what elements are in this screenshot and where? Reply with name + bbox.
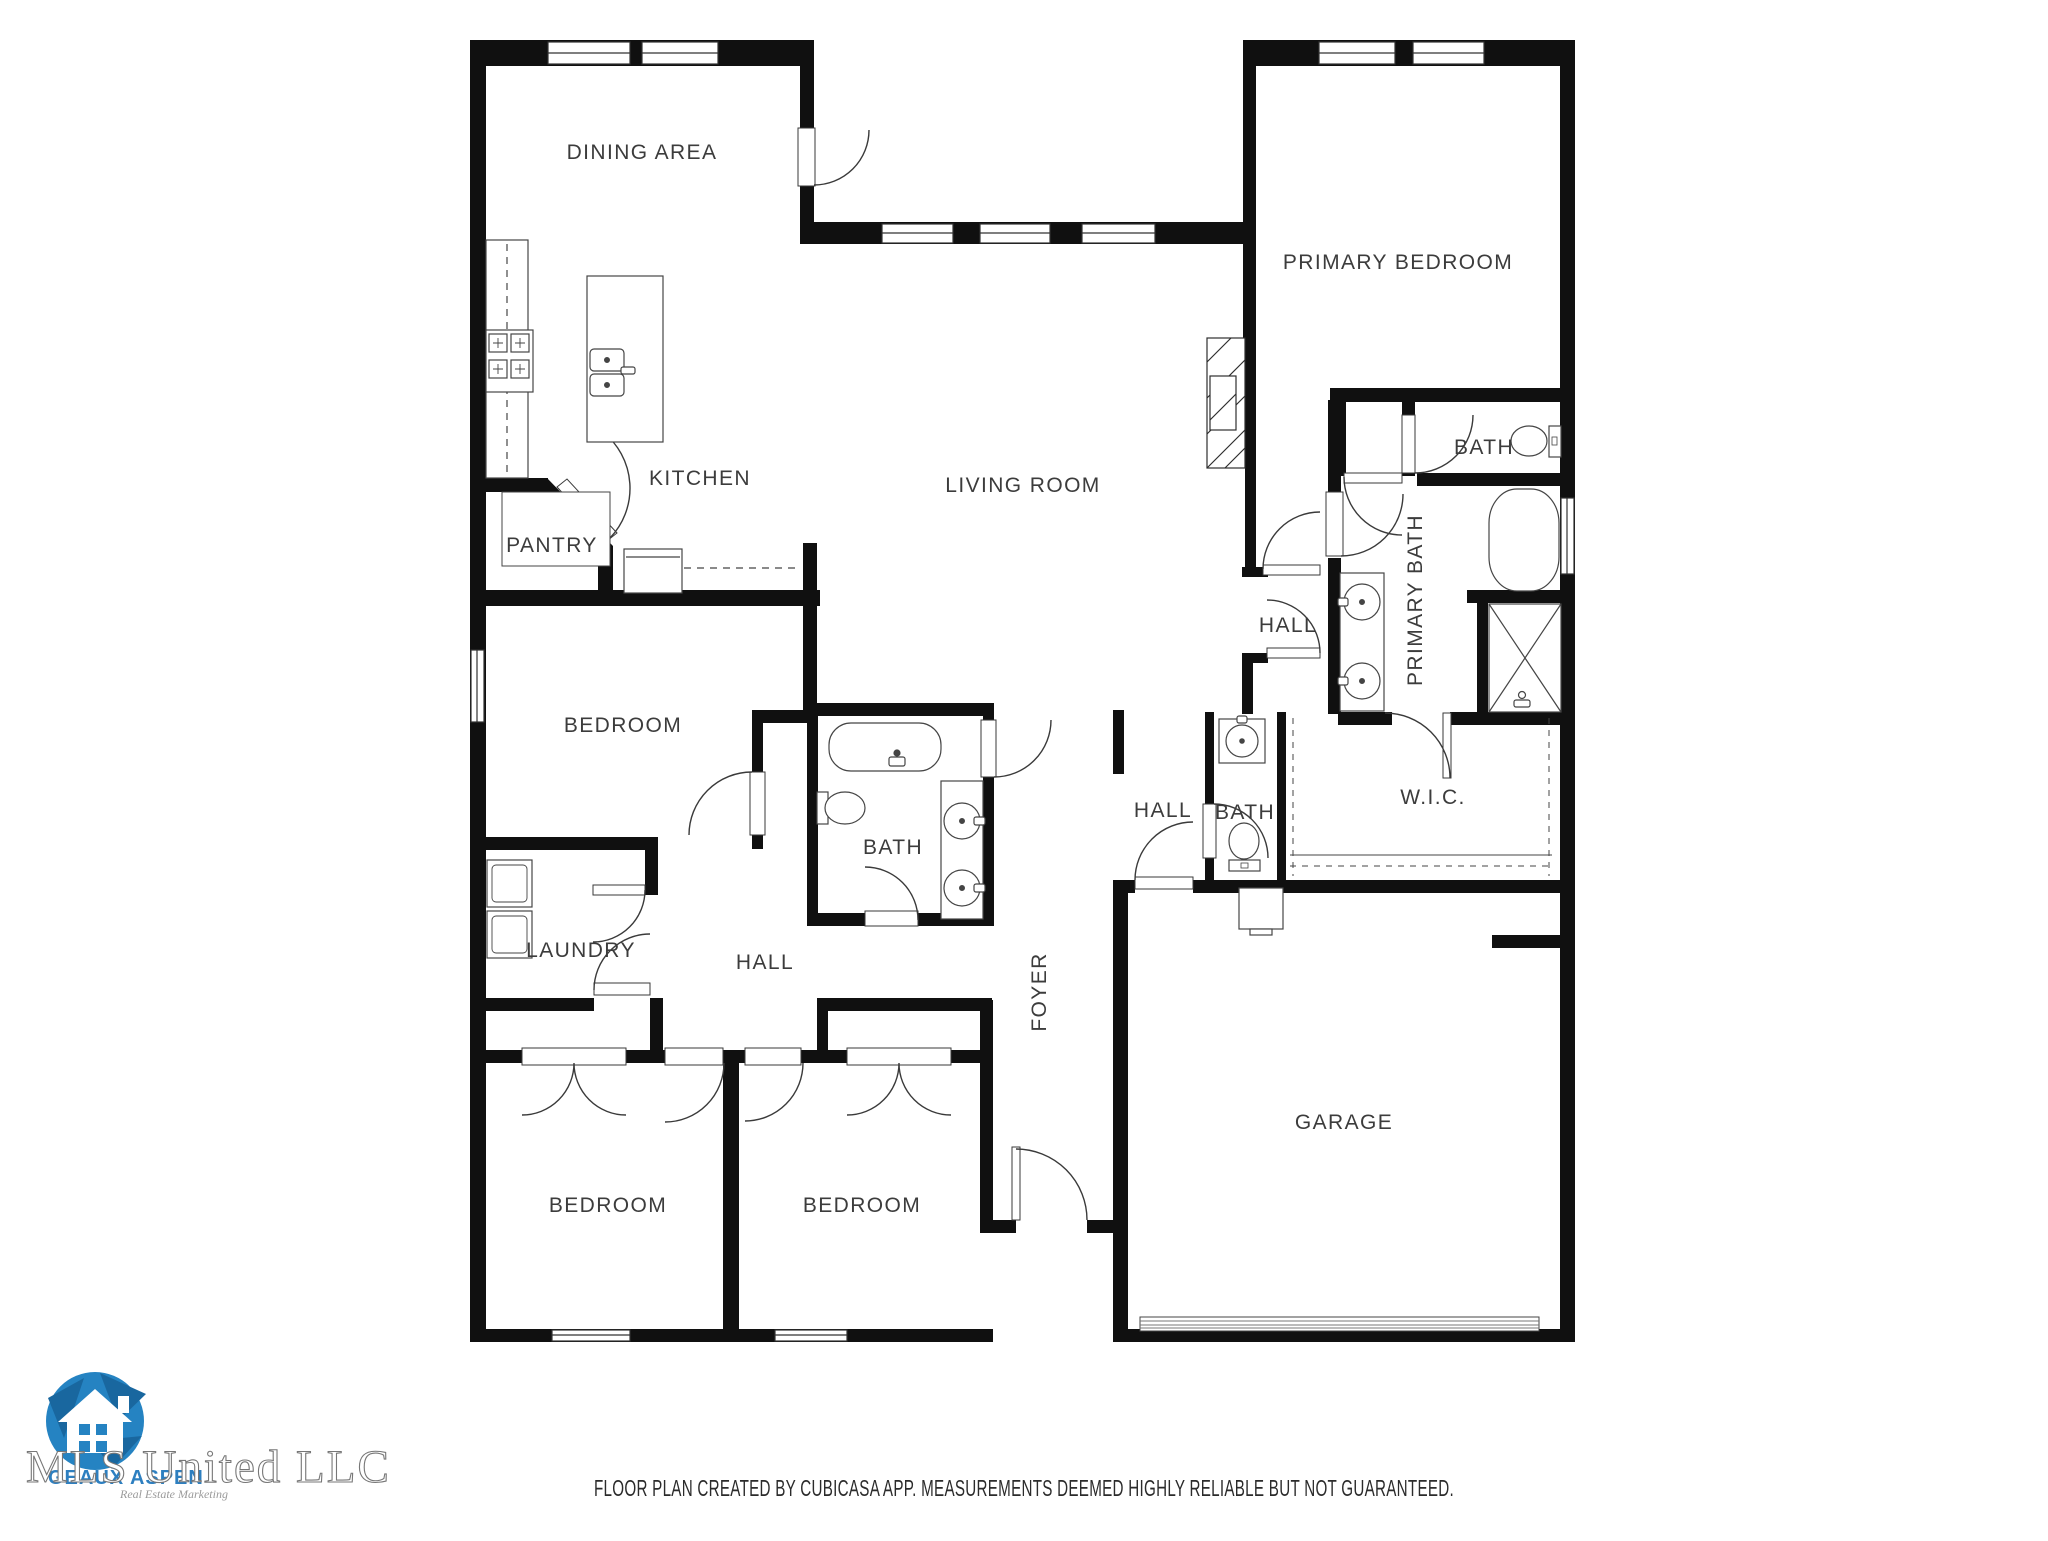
room-label-living-room: LIVING ROOM: [945, 474, 1100, 497]
room-label-pantry: PANTRY: [506, 534, 598, 557]
room-label-bath-lower: BATH: [1215, 801, 1275, 824]
room-label-wic: W.I.C.: [1400, 786, 1466, 809]
counter-desk: [624, 549, 800, 593]
room-label-suite-bath: BATH: [1454, 436, 1514, 459]
primary-vanity: [1338, 573, 1384, 711]
watermark-title: MLS United LLC: [26, 1441, 391, 1493]
suite-bath-toilet: [1511, 426, 1561, 457]
room-label-garage: GARAGE: [1295, 1111, 1393, 1134]
room-label-dining-area: DINING AREA: [567, 141, 718, 164]
floor-plan-image: DINING AREA PRIMARY BEDROOM KITCHEN LIVI…: [0, 0, 2048, 1541]
stove-cooktop: [486, 330, 533, 392]
garage-door: [1140, 1317, 1539, 1331]
water-heater: [1239, 888, 1283, 935]
windows-layer: [471, 42, 1574, 1341]
room-label-bedroom-middle: BEDROOM: [564, 714, 682, 737]
room-label-bedroom-br: BEDROOM: [803, 1194, 921, 1217]
room-label-bath-center: BATH: [863, 836, 923, 859]
primary-shower: [1489, 604, 1561, 712]
room-label-hall-center: HALL: [736, 951, 794, 974]
room-label-bedroom-bl: BEDROOM: [549, 1194, 667, 1217]
disclaimer-text: FLOOR PLAN CREATED BY CUBICASA APP. MEAS…: [594, 1475, 1454, 1501]
center-bath-fixtures: [817, 723, 985, 919]
primary-bathtub: [1489, 489, 1559, 591]
kitchen-island-sink: [587, 276, 663, 442]
room-label-primary-bedroom: PRIMARY BEDROOM: [1283, 251, 1513, 274]
room-label-kitchen: KITCHEN: [649, 467, 751, 490]
mls-united-logo: GEAUX ASPEN Real Estate Marketing MLS Un…: [26, 1372, 391, 1501]
floor-plan-canvas: DINING AREA PRIMARY BEDROOM KITCHEN LIVI…: [0, 0, 2048, 1536]
room-label-hall-lower: HALL: [1134, 799, 1192, 822]
room-label-laundry: LAUNDRY: [526, 939, 636, 962]
room-label-hall-upper: HALL: [1259, 614, 1317, 637]
room-label-primary-bath: PRIMARY BATH: [1404, 514, 1427, 686]
fireplace: [1207, 338, 1245, 468]
room-label-foyer: FOYER: [1028, 952, 1051, 1031]
lower-bath-fixtures: [1219, 716, 1265, 871]
